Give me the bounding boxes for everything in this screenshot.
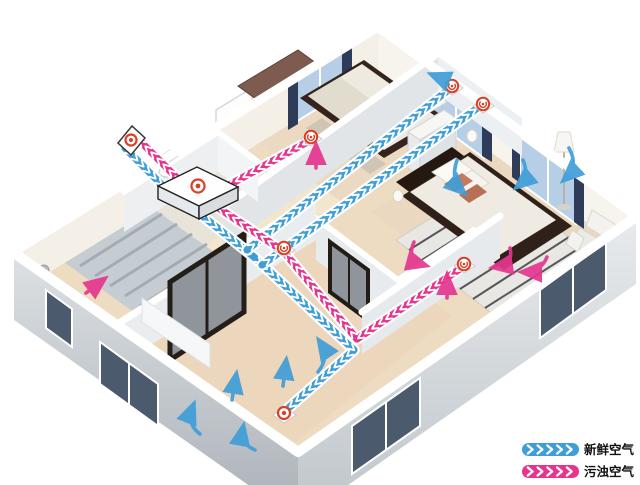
house <box>12 27 636 485</box>
legend-item-fresh-air: 新鲜空气 <box>522 442 635 457</box>
ventilation-diagram-svg: 新鲜空气 污浊空气 <box>0 0 640 485</box>
legend-fresh-label: 新鲜空气 <box>584 442 635 457</box>
legend-item-exhaust-air: 污浊空气 <box>522 464 635 479</box>
unit-fan-icon <box>192 180 205 193</box>
legend-exhaust-label: 污浊空气 <box>584 464 635 479</box>
legend: 新鲜空气 污浊空气 <box>522 442 635 479</box>
curtain <box>574 177 584 229</box>
fresh-air-system-illustration: 新鲜空气 污浊空气 <box>0 0 640 485</box>
